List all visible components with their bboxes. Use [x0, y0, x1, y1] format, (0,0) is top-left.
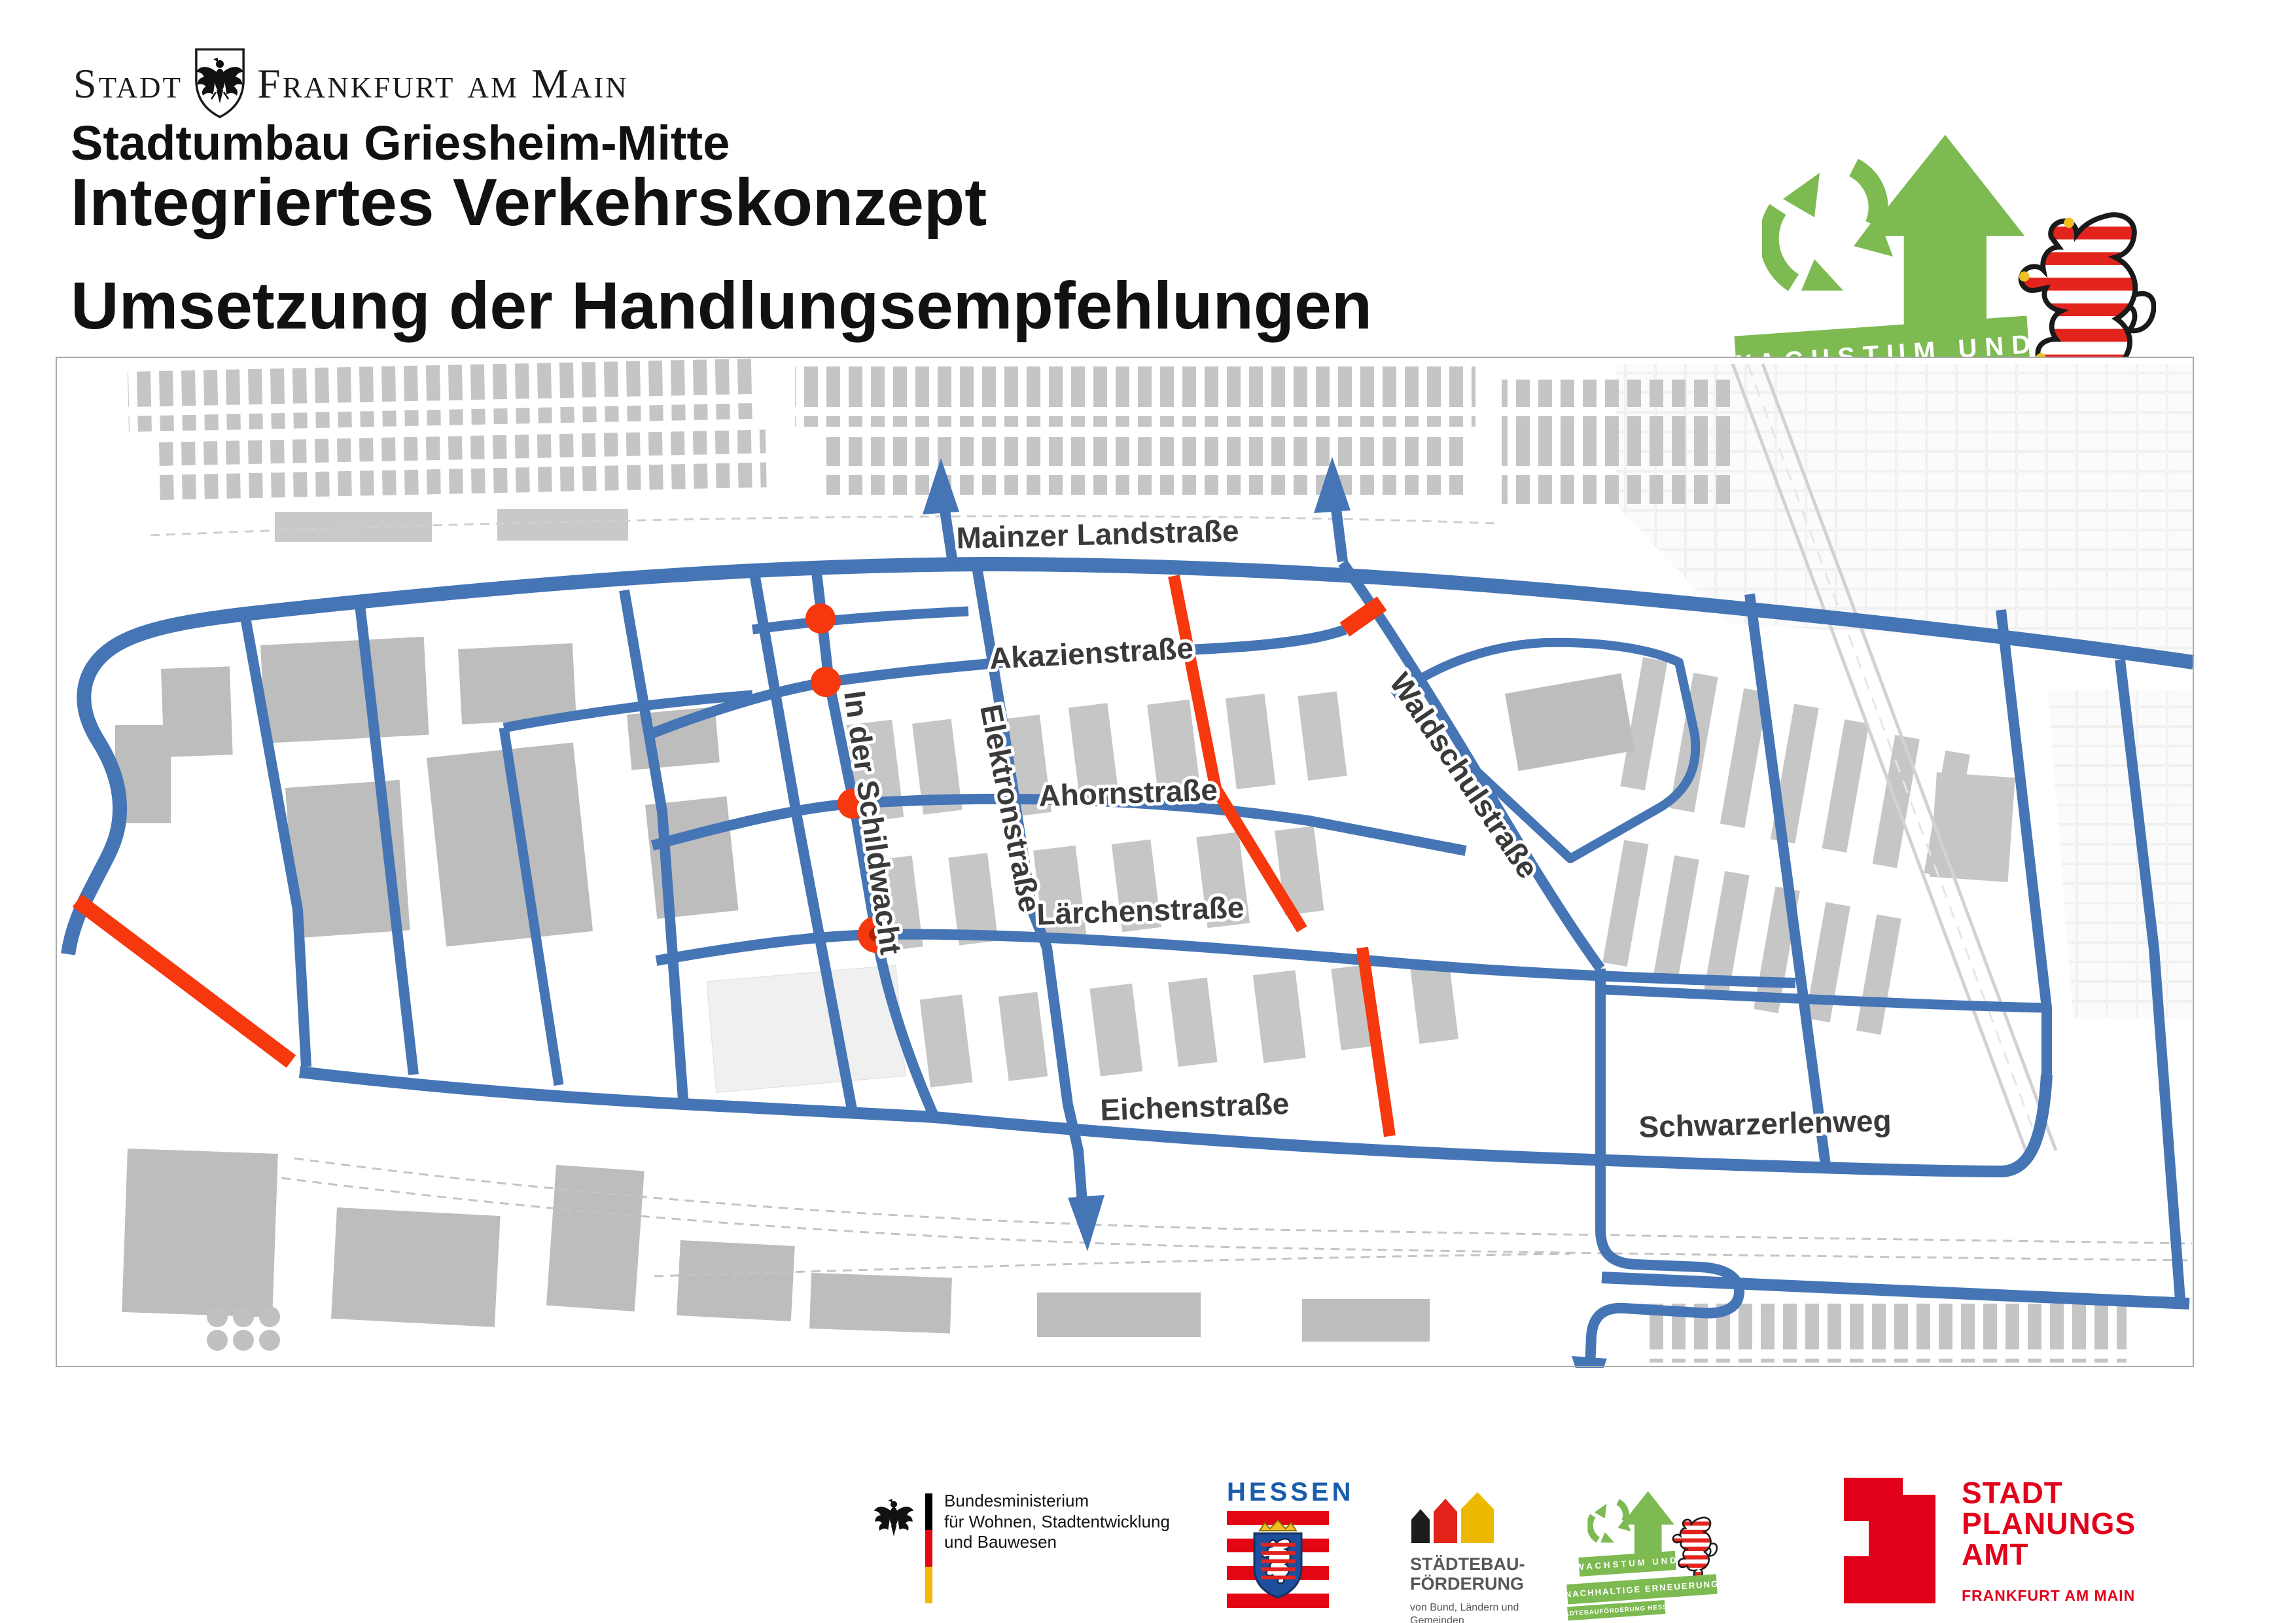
- hessen-title: HESSEN: [1227, 1478, 1332, 1507]
- sbf-line2: FÖRDERUNG: [1410, 1574, 1528, 1594]
- page-title-2: Umsetzung der Handlungsempfehlungen: [71, 272, 1372, 339]
- page-title: Integriertes Verkehrskonzept: [71, 169, 987, 236]
- sbf-sub1: von Bund, Ländern und: [1410, 1601, 1528, 1614]
- street-label-laerchenstrasse: Lärchenstraße: [1036, 890, 1245, 931]
- growth-banner-2: NACHHALTIGE ERNEUERUNG: [1566, 1574, 1718, 1604]
- hessen-logo: HESSEN: [1227, 1478, 1332, 1608]
- growth-arrow-icon: [1862, 135, 2032, 331]
- staedtebaufoerderung-logo: STÄDTEBAU- FÖRDERUNG von Bund, Ländern u…: [1410, 1492, 1528, 1623]
- city-logo-name: Frankfurt am Main: [257, 60, 629, 108]
- growth-arrow-icon: [1621, 1491, 1677, 1556]
- city-logo-stadt: Stadt: [73, 60, 183, 108]
- spa-line2: PLANUNGS: [1962, 1508, 2136, 1539]
- bmwsb-line2: für Wohnen, Stadtentwicklung: [944, 1512, 1170, 1533]
- stadtplanungsamt-mark-icon: [1844, 1478, 1935, 1603]
- traffic-concept-map: Mainzer Landstraße Akazienstraße Ahornst…: [56, 357, 2195, 1368]
- bmwsb-line1: Bundesministerium: [944, 1491, 1170, 1512]
- growth-banner-1-text: WACHSTUM UND: [1576, 1556, 1679, 1573]
- three-houses-icon: [1410, 1492, 1496, 1544]
- street-label-ahornstrasse: Ahornstraße: [1038, 772, 1218, 813]
- federal-eagle-icon: [870, 1492, 917, 1539]
- street-label-schwarzerlenweg: Schwarzerlenweg: [1638, 1103, 1892, 1144]
- stadtplanungsamt-logo: STADT PLANUNGS AMT FRANKFURT AM MAIN: [1844, 1478, 2136, 1605]
- german-flag-bar: [925, 1493, 932, 1603]
- spa-sub: FRANKFURT AM MAIN: [1962, 1587, 2136, 1605]
- bmwsb-line3: und Bauwesen: [944, 1532, 1170, 1553]
- growth-banner-2-text: NACHHALTIGE ERNEUERUNG: [1564, 1579, 1720, 1599]
- map-canvas: Mainzer Landstraße Akazienstraße Ahornst…: [56, 357, 2195, 1368]
- poster: Stadt Frankfurt am Main Stadtumbau Gries…: [0, 0, 2296, 1623]
- city-logo: Stadt Frankfurt am Main: [73, 45, 629, 123]
- sbf-line1: STÄDTEBAU-: [1410, 1554, 1528, 1574]
- sbf-sub2: Gemeinden: [1410, 1614, 1528, 1623]
- project-subtitle: Stadtumbau Griesheim-Mitte: [71, 119, 730, 168]
- growth-banner-3-text: STÄDTEBAUFÖRDERUNG HESSEN: [1555, 1603, 1678, 1618]
- growth-logo-small: WACHSTUM UND NACHHALTIGE ERNEUERUNG STÄD…: [1567, 1483, 1731, 1621]
- spa-line1: STADT: [1962, 1478, 2136, 1508]
- growth-banner-1: WACHSTUM UND: [1578, 1551, 1676, 1577]
- hessen-lion-icon: [1671, 1516, 1718, 1579]
- bmwsb-logo: Bundesministerium für Wohnen, Stadtentwi…: [870, 1484, 1170, 1603]
- hessen-flag: [1227, 1511, 1329, 1608]
- frankfurt-eagle-shield-icon: [192, 45, 248, 123]
- hessen-coat-of-arms-icon: [1248, 1519, 1308, 1600]
- spa-line3: AMT: [1962, 1539, 2136, 1570]
- street-label-eichenstrasse: Eichenstraße: [1100, 1086, 1290, 1127]
